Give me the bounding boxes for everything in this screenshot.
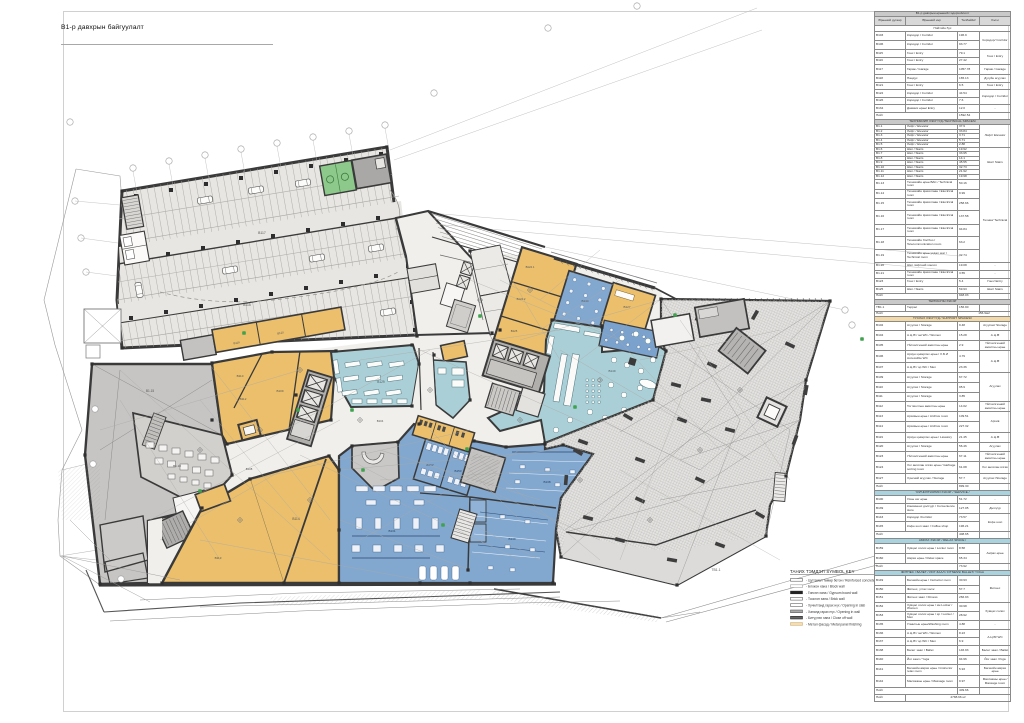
svg-text:В109: В109 (276, 389, 283, 393)
svg-text:В138: В138 (543, 480, 550, 484)
svg-text:- Тоосгон хана / Brick wall: - Тоосгон хана / Brick wall (806, 597, 845, 601)
svg-text:- Цутгамал төмөр бетон / Reinf: - Цутгамал төмөр бетон / Reinforced conc… (806, 578, 875, 582)
svg-text:В113: В113 (215, 556, 222, 560)
svg-text:В140: В140 (508, 537, 515, 541)
svg-text:- Хананд гарах нүх / Opening i: - Хананд гарах нүх / Opening in wall (806, 610, 860, 614)
svg-text:В117: В117 (258, 231, 266, 235)
svg-text:- Гипсэн хана / Gypsum board w: - Гипсэн хана / Gypsum board wall (806, 591, 858, 595)
svg-text:В108: В108 (246, 467, 253, 471)
svg-text:В127: В127 (623, 305, 630, 309)
svg-text:В1.15: В1.15 (146, 389, 155, 393)
svg-text:ТВ1.1: ТВ1.1 (711, 568, 720, 572)
svg-text:- Хучилтанд гарах нүх / Openin: - Хучилтанд гарах нүх / Opening in slab (806, 604, 865, 608)
svg-text:- Метал фасад / Metal panel fi: - Метал фасад / Metal panel finishing (806, 622, 862, 626)
svg-text:В114: В114 (292, 517, 299, 521)
svg-text:В112: В112 (240, 397, 247, 401)
svg-text:В104: В104 (377, 419, 384, 423)
svg-text:В115: В115 (243, 303, 251, 307)
svg-text:В131: В131 (388, 529, 395, 533)
svg-text:В153: В153 (454, 469, 461, 473)
svg-text:- Блокон хана / Block wall: - Блокон хана / Block wall (806, 585, 845, 589)
svg-text:В124.1: В124.1 (526, 265, 535, 269)
svg-text:В144: В144 (581, 299, 588, 303)
svg-text:В1.18: В1.18 (173, 464, 181, 468)
svg-text:В124.2: В124.2 (517, 297, 526, 301)
svg-text:В125: В125 (511, 329, 518, 333)
svg-text:- Битүүлэх хана / Close off wa: - Битүүлэх хана / Close off wall (806, 616, 853, 620)
svg-text:В129: В129 (377, 380, 385, 384)
svg-text:В110: В110 (237, 374, 244, 378)
svg-text:ТАНИХ ТЭМДЭГ/ SYMBOL KEY: ТАНИХ ТЭМДЭГ/ SYMBOL KEY (790, 569, 855, 574)
svg-text:В149: В149 (608, 369, 615, 373)
